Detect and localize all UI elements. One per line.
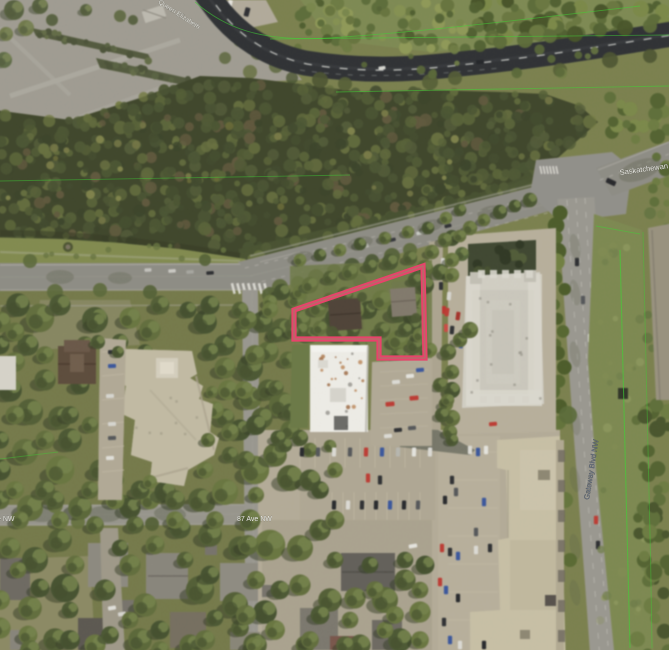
svg-text:Queen Elizabeth: Queen Elizabeth: [157, 0, 201, 31]
svg-text:87 Ave NW: 87 Ave NW: [237, 516, 272, 523]
svg-text:Gateway Blvd NW: Gateway Blvd NW: [582, 438, 601, 500]
svg-text:Saskatchewan Dr N: Saskatchewan Dr N: [619, 159, 669, 177]
svg-text:e NW: e NW: [0, 516, 15, 523]
